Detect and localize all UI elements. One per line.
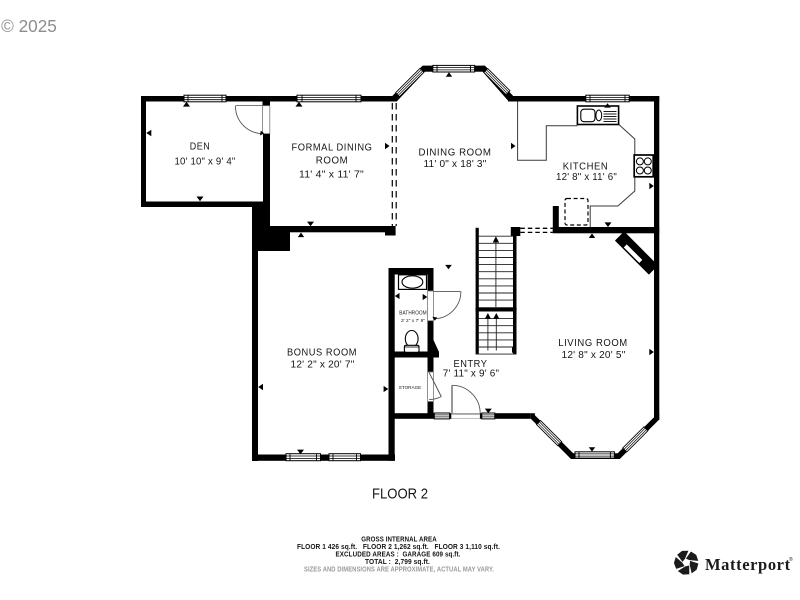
svg-text:TOTAL : 2,799 sq.ft.: TOTAL : 2,799 sq.ft.: [365, 559, 430, 566]
svg-text:GROSS INTERNAL AREA: GROSS INTERNAL AREA: [361, 537, 437, 544]
svg-text:11' 0" x 18' 3": 11' 0" x 18' 3": [424, 159, 487, 170]
svg-text:BONUS ROOM: BONUS ROOM: [287, 348, 357, 359]
svg-text:STORAGE: STORAGE: [399, 385, 422, 391]
svg-text:DEN: DEN: [190, 142, 211, 153]
svg-text:DINING ROOM: DINING ROOM: [419, 148, 492, 159]
svg-text:Matterport: Matterport: [705, 555, 791, 574]
svg-text:LIVING ROOM: LIVING ROOM: [558, 338, 628, 349]
svg-text:SIZES AND DIMENSIONS ARE APPRO: SIZES AND DIMENSIONS ARE APPROXIMATE, AC…: [304, 567, 494, 574]
svg-text:FLOOR 1 426 sq.ft. FLOOR 2 1: FLOOR 1 426 sq.ft. FLOOR 2 1,262 sq.ft. …: [297, 544, 500, 551]
svg-text:12' 8" x 11' 6": 12' 8" x 11' 6": [556, 172, 617, 183]
svg-text:3' 2" x 7' 9": 3' 2" x 7' 9": [401, 318, 425, 323]
svg-text:BATHROOM: BATHROOM: [399, 311, 427, 317]
svg-text:®: ®: [789, 556, 793, 563]
svg-text:11' 4" x 11' 7": 11' 4" x 11' 7": [299, 170, 364, 181]
svg-text:12' 8" x 20' 5": 12' 8" x 20' 5": [562, 350, 626, 361]
svg-text:ROOM: ROOM: [316, 156, 349, 167]
svg-text:EXCLUDED AREAS : GARAGE 609 s: EXCLUDED AREAS : GARAGE 609 sq.ft.: [336, 552, 461, 559]
svg-text:FLOOR 2: FLOOR 2: [372, 485, 428, 502]
svg-text:7' 11" x 9' 6": 7' 11" x 9' 6": [443, 368, 500, 379]
svg-text:12' 2" x 20' 7": 12' 2" x 20' 7": [291, 360, 355, 371]
svg-text:FORMAL DINING: FORMAL DINING: [292, 143, 373, 154]
svg-text:KITCHEN: KITCHEN: [563, 162, 609, 173]
svg-text:© 2025: © 2025: [1, 16, 57, 36]
svg-text:10' 10" x 9' 4": 10' 10" x 9' 4": [175, 157, 236, 168]
